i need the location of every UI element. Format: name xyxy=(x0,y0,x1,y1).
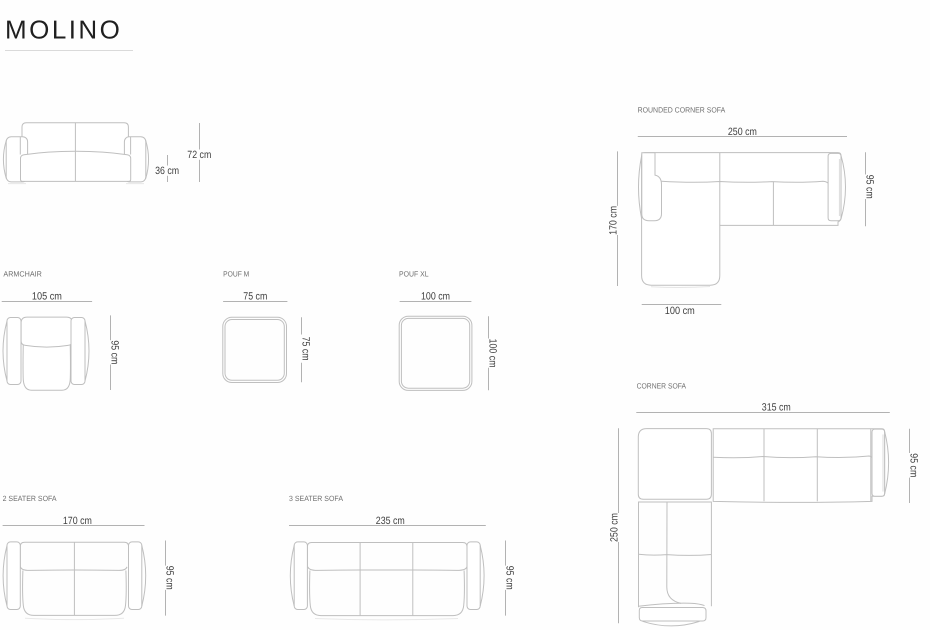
svg-text:POUF M: POUF M xyxy=(223,270,249,279)
svg-text:100 cm: 100 cm xyxy=(487,339,499,368)
svg-text:100 cm: 100 cm xyxy=(665,305,695,317)
svg-text:250 cm: 250 cm xyxy=(728,126,757,138)
svg-text:95 cm: 95 cm xyxy=(504,566,516,590)
svg-text:95 cm: 95 cm xyxy=(908,453,920,477)
svg-text:75 cm: 75 cm xyxy=(300,337,312,361)
svg-text:2 SEATER SOFA: 2 SEATER SOFA xyxy=(3,494,58,503)
svg-text:235 cm: 235 cm xyxy=(376,515,405,527)
svg-text:105 cm: 105 cm xyxy=(32,291,62,303)
svg-text:CORNER SOFA: CORNER SOFA xyxy=(637,381,687,390)
svg-text:95 cm: 95 cm xyxy=(109,340,121,364)
svg-text:315 cm: 315 cm xyxy=(762,401,791,413)
svg-text:75 cm: 75 cm xyxy=(243,291,267,303)
svg-text:3 SEATER SOFA: 3 SEATER SOFA xyxy=(289,494,344,503)
svg-text:MOLINO: MOLINO xyxy=(5,15,122,45)
svg-text:170 cm: 170 cm xyxy=(63,515,92,527)
svg-text:100 cm: 100 cm xyxy=(421,291,450,303)
svg-text:72 cm: 72 cm xyxy=(187,149,211,161)
svg-text:95 cm: 95 cm xyxy=(864,175,876,199)
svg-text:ROUNDED CORNER SOFA: ROUNDED CORNER SOFA xyxy=(638,106,727,115)
svg-text:ARMCHAIR: ARMCHAIR xyxy=(3,270,42,279)
svg-text:250 cm: 250 cm xyxy=(609,513,621,542)
svg-text:170 cm: 170 cm xyxy=(608,206,620,235)
svg-text:36 cm: 36 cm xyxy=(155,165,179,177)
svg-text:95 cm: 95 cm xyxy=(164,566,176,590)
svg-text:POUF XL: POUF XL xyxy=(399,270,429,279)
